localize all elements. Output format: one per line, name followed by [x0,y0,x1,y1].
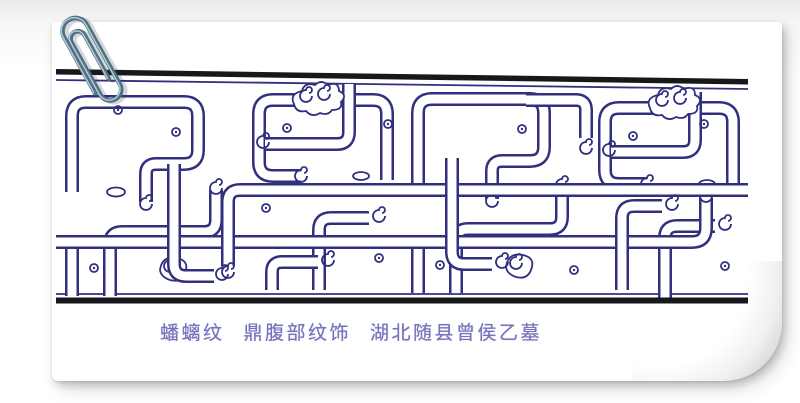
caption: 蟠螭纹 鼎腹部纹饰 湖北随县曾侯乙墓 [160,321,542,347]
caption-description: 鼎腹部纹饰 [244,321,352,347]
caption-motif: 蟠螭纹 [160,321,225,347]
caption-provenance: 湖北随县曾侯乙墓 [370,321,542,347]
photo-card: 蟠螭纹 鼎腹部纹饰 湖北随县曾侯乙墓 [52,22,782,381]
band-bottom-border [56,298,748,304]
bronze-pattern-illustration [56,66,748,306]
page-background: 蟠螭纹 鼎腹部纹饰 湖北随县曾侯乙墓 [0,0,800,403]
